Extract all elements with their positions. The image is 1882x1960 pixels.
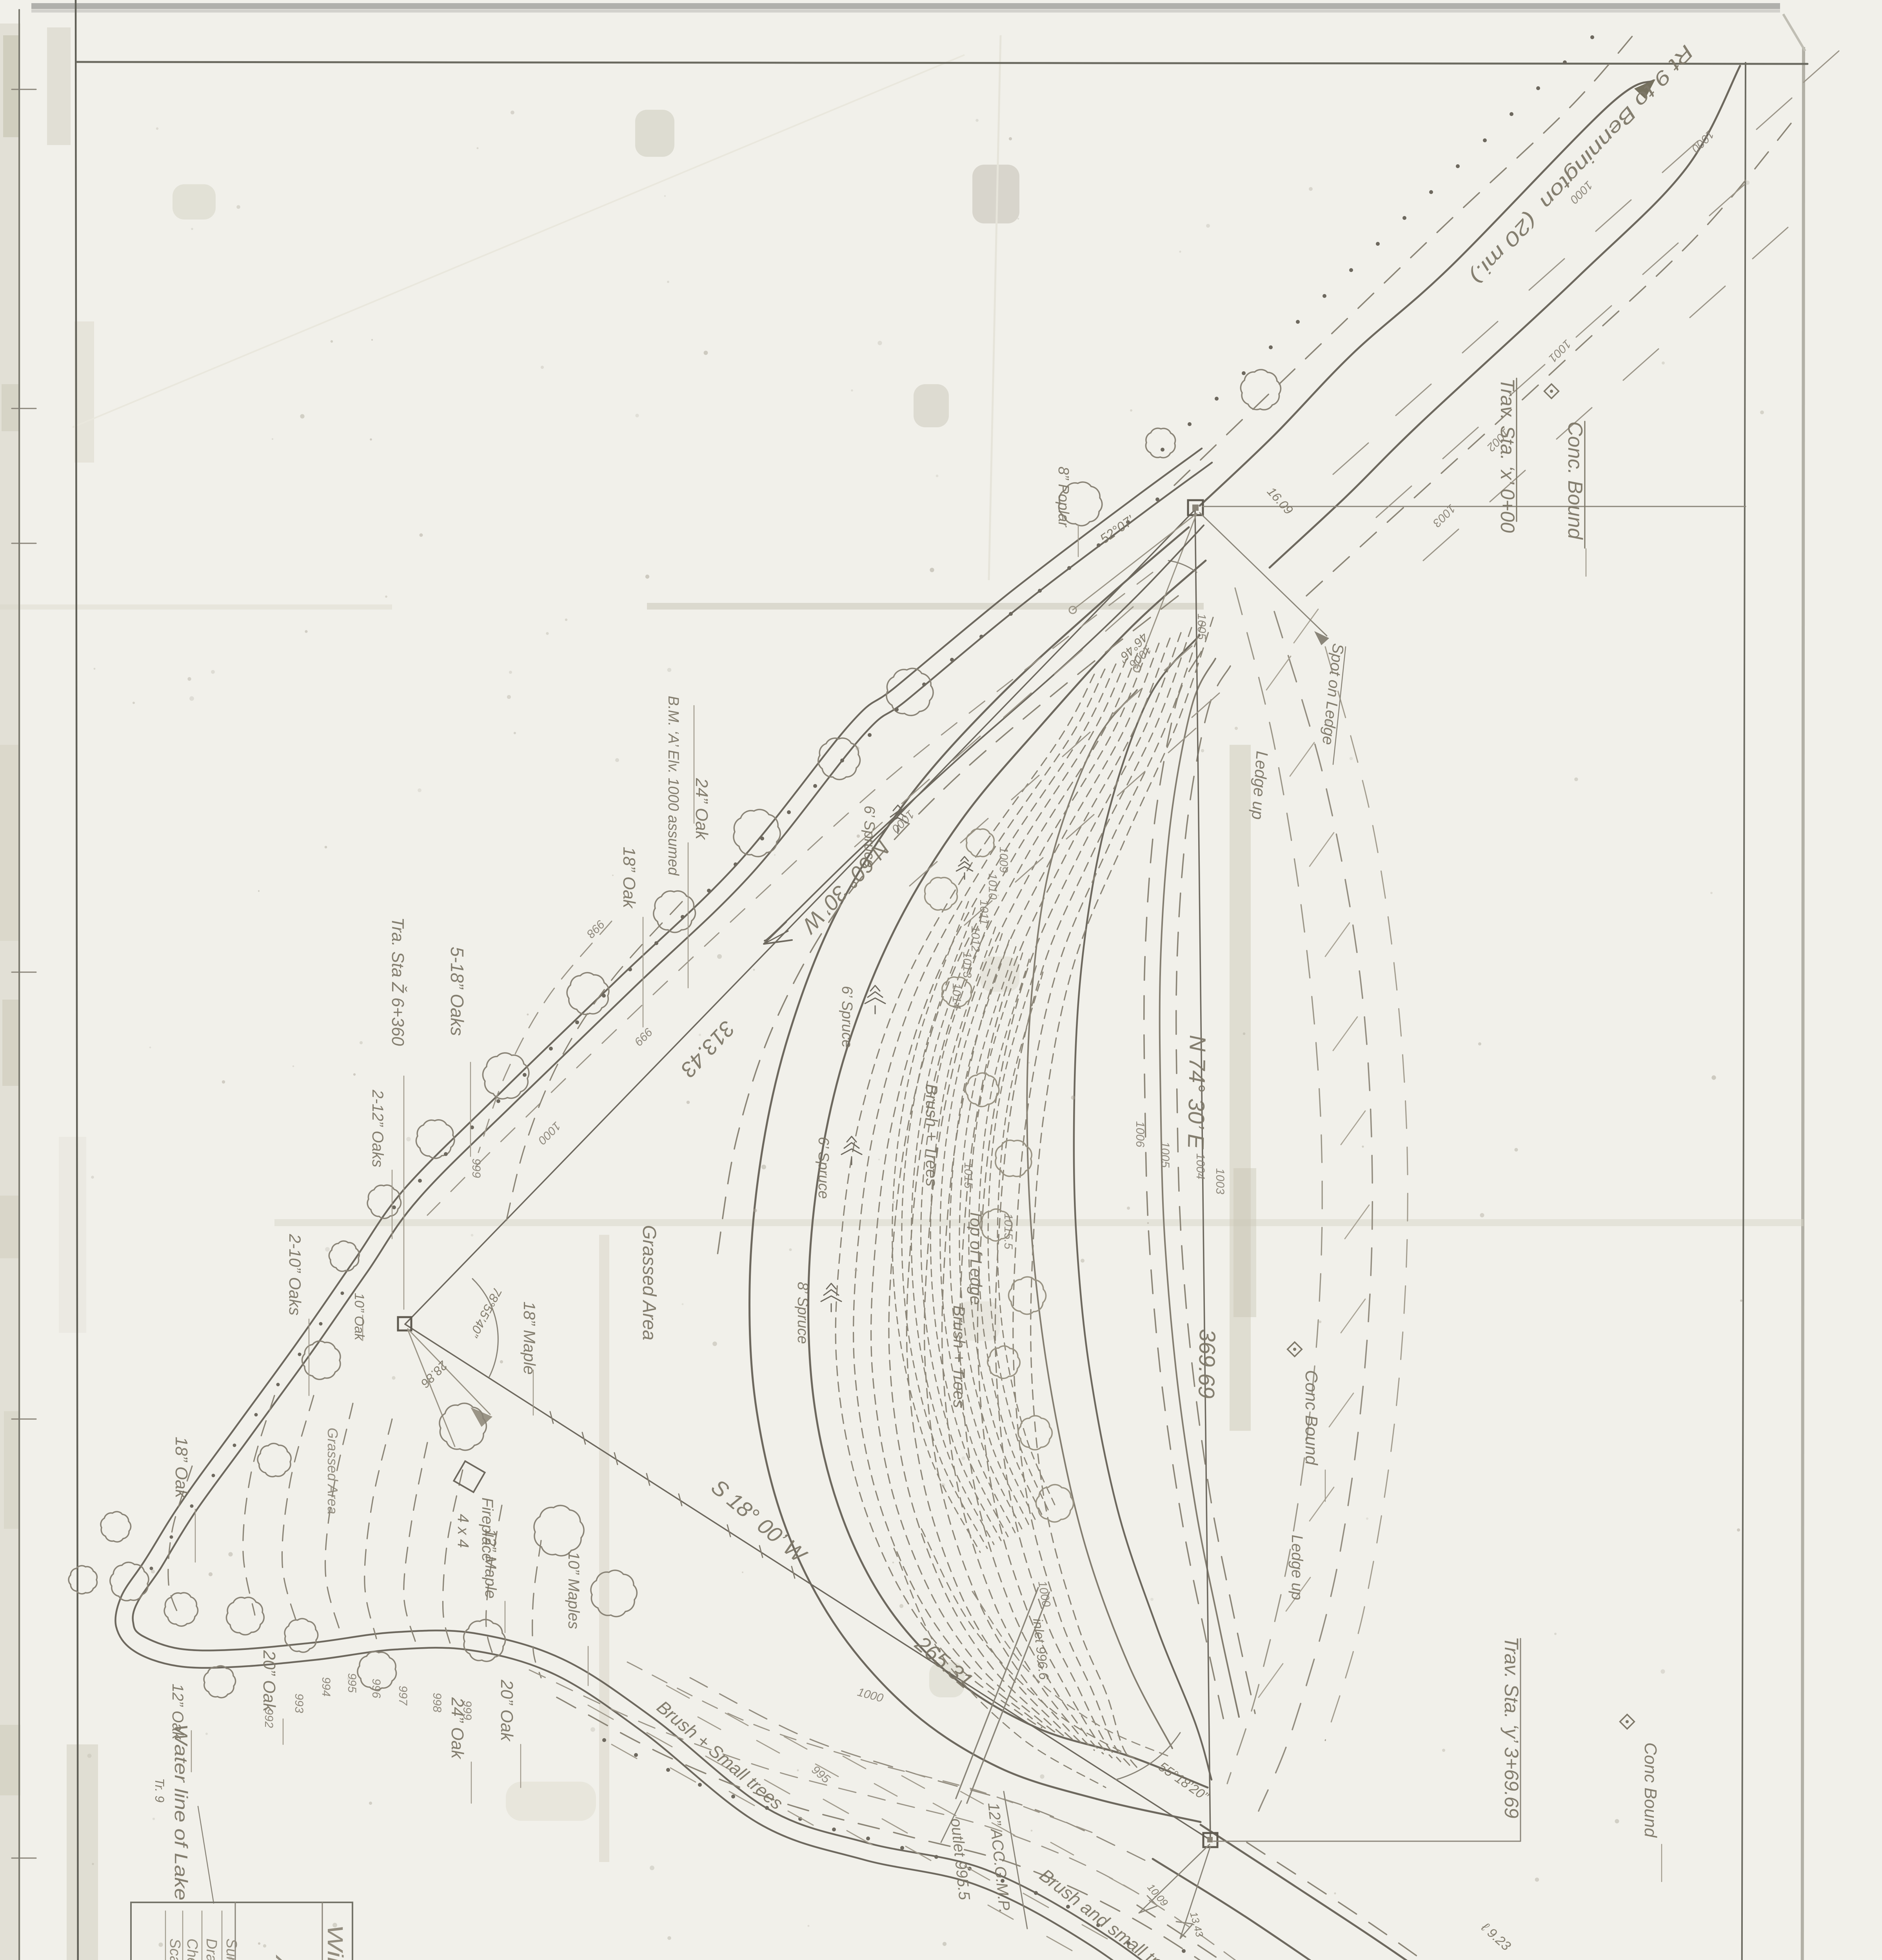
svg-text:1003: 1003 bbox=[1213, 1168, 1226, 1194]
svg-text:6’ Spruce: 6’ Spruce bbox=[839, 986, 855, 1048]
svg-text:995: 995 bbox=[345, 1673, 358, 1693]
svg-text:5-18” Oaks: 5-18” Oaks bbox=[447, 947, 467, 1036]
svg-text:24” Oak: 24” Oak bbox=[692, 778, 711, 840]
svg-text:996: 996 bbox=[370, 1679, 383, 1698]
svg-text:18” Oak: 18” Oak bbox=[172, 1437, 191, 1499]
svg-text:1005: 1005 bbox=[1159, 1142, 1172, 1168]
svg-text:10” Oak: 10” Oak bbox=[352, 1293, 367, 1341]
svg-text:992: 992 bbox=[262, 1708, 275, 1728]
svg-text:Checked by: Checked by bbox=[184, 1938, 200, 1960]
svg-text:8’ Spruce: 8’ Spruce bbox=[794, 1282, 811, 1344]
svg-text:B.M. ‘A’ Elv. 1000 assumed: B.M. ‘A’ Elv. 1000 assumed bbox=[665, 696, 681, 876]
svg-text:Tr. 9: Tr. 9 bbox=[153, 1778, 167, 1802]
svg-text:999: 999 bbox=[470, 1158, 483, 1178]
svg-text:1006: 1006 bbox=[1134, 1121, 1146, 1147]
svg-text:Conc. Bound: Conc. Bound bbox=[1564, 421, 1586, 540]
svg-text:Trav. Sta. ‘x’ 0+00: Trav. Sta. ‘x’ 0+00 bbox=[1497, 378, 1519, 533]
svg-text:Conc Bound: Conc Bound bbox=[1641, 1742, 1660, 1838]
svg-text:1012: 1012 bbox=[969, 926, 982, 952]
svg-text:994: 994 bbox=[320, 1677, 332, 1697]
svg-text:Brush + Trees: Brush + Trees bbox=[923, 1084, 941, 1187]
svg-text:12” Maple: 12” Maple bbox=[482, 1529, 499, 1599]
svg-text:Ledge up: Ledge up bbox=[1288, 1535, 1306, 1600]
svg-text:369.69: 369.69 bbox=[1194, 1329, 1220, 1399]
svg-text:18” Oak: 18” Oak bbox=[619, 847, 639, 909]
svg-text:993: 993 bbox=[292, 1693, 305, 1713]
svg-text:Surveyed by: Surveyed by bbox=[223, 1938, 240, 1960]
svg-text:Wilmington- Wayside-Rest -: Wilmington- Wayside-Rest - bbox=[323, 1925, 348, 1960]
svg-text:2-12” Oaks: 2-12” Oaks bbox=[369, 1089, 386, 1167]
svg-text:1014: 1014 bbox=[950, 983, 963, 1009]
svg-text:1010: 1010 bbox=[986, 873, 999, 900]
svg-text:1011: 1011 bbox=[977, 900, 990, 925]
svg-text:1009: 1009 bbox=[997, 847, 1010, 873]
svg-text:20” Oak: 20” Oak bbox=[260, 1650, 279, 1713]
svg-text:999: 999 bbox=[461, 1700, 474, 1720]
svg-text:Tra. Sta Ž 6+360: Tra. Sta Ž 6+360 bbox=[388, 917, 407, 1046]
svg-text:Drawn by: Drawn by bbox=[203, 1938, 220, 1960]
svg-text:Grassed Area: Grassed Area bbox=[325, 1428, 341, 1514]
svg-text:Trav. Sta. ‘y’ 3+69.69: Trav. Sta. ‘y’ 3+69.69 bbox=[1501, 1637, 1522, 1818]
svg-text:N 74° 30’ E: N 74° 30’ E bbox=[1183, 1035, 1210, 1150]
svg-text:997: 997 bbox=[396, 1686, 409, 1706]
svg-text:10” Maples: 10” Maples bbox=[565, 1552, 582, 1629]
svg-text:18” Maple: 18” Maple bbox=[520, 1301, 539, 1375]
svg-text:Grassed Area: Grassed Area bbox=[639, 1225, 659, 1340]
svg-text:Scale: Scale bbox=[167, 1938, 183, 1960]
svg-text:998: 998 bbox=[431, 1693, 443, 1712]
svg-text:1013: 1013 bbox=[961, 952, 974, 978]
svg-text:8” Poplar: 8” Poplar bbox=[1055, 466, 1072, 528]
svg-text:1004: 1004 bbox=[1194, 1153, 1207, 1180]
svg-text:2-10” Oaks: 2-10” Oaks bbox=[286, 1234, 304, 1316]
svg-text:Top of Ledge: Top of Ledge bbox=[967, 1209, 985, 1305]
svg-text:6’ Spruce: 6’ Spruce bbox=[815, 1137, 832, 1199]
svg-text:1015.5: 1015.5 bbox=[1002, 1213, 1015, 1249]
svg-text:Water line of Lake: Water line of Lake bbox=[171, 1724, 191, 1900]
svg-text:Brush + Trees: Brush + Trees bbox=[950, 1305, 968, 1408]
svg-text:4 x 4: 4 x 4 bbox=[454, 1514, 472, 1548]
svg-text:6’ Spruce: 6’ Spruce bbox=[861, 806, 877, 867]
svg-text:1005: 1005 bbox=[1195, 613, 1208, 640]
svg-text:Conc Bound: Conc Bound bbox=[1302, 1370, 1321, 1466]
svg-text:1015: 1015 bbox=[962, 1162, 975, 1189]
svg-text:20” Oak: 20” Oak bbox=[497, 1679, 516, 1742]
